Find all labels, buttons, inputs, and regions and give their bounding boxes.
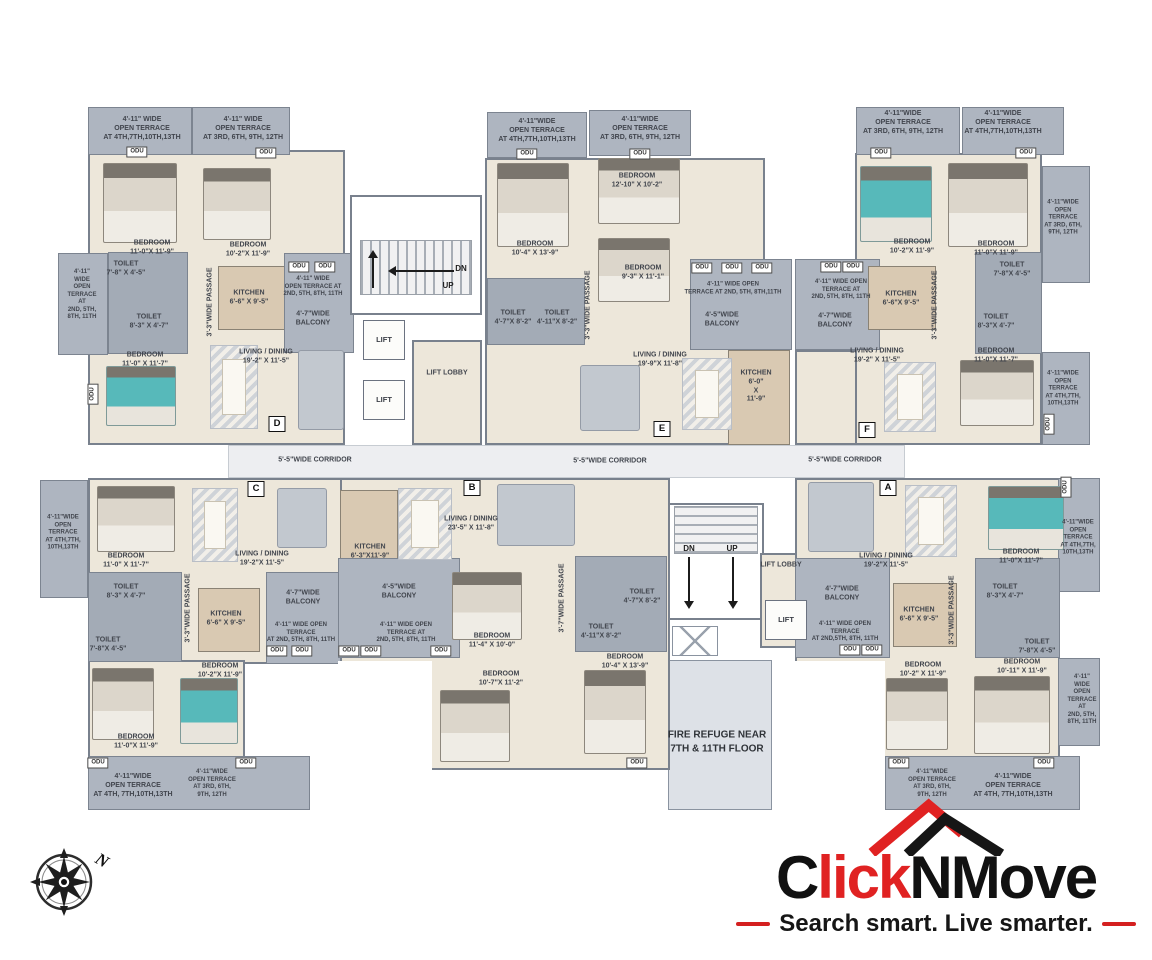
room-label: 4'-11"WIDE OPEN TERRACE AT 4TH,7TH, 10TH… [45, 514, 80, 552]
room-label: TOILET 7'-8"X 4'-5" [90, 636, 127, 654]
room-label: KITCHEN 6'-6"X 9'-5" [883, 290, 920, 308]
odu-label: ODU [235, 758, 256, 769]
room-label: TOILET 4'-11"X 8'-2" [537, 309, 577, 327]
bed-icon [203, 168, 271, 240]
room-label: BEDROOM 10'-2" X 11'-9" [900, 661, 946, 679]
odu-label: ODU [255, 148, 276, 159]
bed-icon [497, 163, 569, 247]
room-label: LIVING / DINING 19'-2"X 11'-5" [859, 552, 913, 570]
room-label: BEDROOM 10'-4" X 13'-9" [602, 653, 649, 671]
lift-label: LIFT [363, 380, 405, 420]
room-label: 4'-5"WIDE BALCONY [382, 583, 417, 601]
room-label: 4'-11"WIDE OPEN TERRACE AT 3RD, 6TH, 9TH… [188, 769, 236, 799]
bed-icon [106, 366, 176, 426]
room-label: BEDROOM 11'-0" X 11'-7" [122, 351, 168, 369]
odu-label: ODU [430, 646, 451, 657]
dining-rug [682, 358, 732, 430]
odu-label: ODU [1015, 148, 1036, 159]
brand-part-black: NMove [909, 844, 1096, 911]
room-label: BEDROOM 10'-2"X 11'-9" [890, 238, 934, 256]
sofa-icon [497, 484, 575, 546]
unit-label-f: F [859, 422, 876, 438]
room-label: TOILET 7'-8" X 4'-5" [107, 260, 146, 278]
tagline-dash [736, 922, 770, 926]
room-label: KITCHEN 6'-0" X 11'-9" [740, 370, 771, 405]
odu-label: ODU [126, 147, 147, 158]
room-label: BEDROOM 11'-0" X 11'-7" [103, 552, 149, 570]
odu-label: ODU [751, 263, 772, 274]
stairs-up-label: UP [726, 544, 737, 554]
room-label: TOILET 8'-3" X 4'-7" [107, 583, 146, 601]
room-label: BEDROOM 11'-0"X 11'-9" [974, 240, 1018, 258]
room-label: 4'-11" WIDE OPEN TERRACE AT 2ND, 5TH, 8T… [684, 282, 781, 297]
room-label: 4'-11"WIDE OPEN TERRACE AT 4TH,7TH, 10TH… [1045, 370, 1080, 408]
room-label: KITCHEN 6'-6" X 9'-5" [900, 606, 939, 624]
room-label: TOILET 4'-7"X 8'-2" [495, 309, 532, 327]
room-label: 4'-11"WIDE OPEN TERRACE AT 4TH,7TH,10TH,… [498, 118, 575, 144]
unit-label-e: E [654, 421, 671, 437]
room-label: BEDROOM 11'-0"X 11'-9" [114, 733, 158, 751]
room-label: 4'-11"WIDE OPEN TERRACE AT 3RD, 6TH, 9TH… [1044, 199, 1082, 237]
room-label: LIVING / DINING 19'-2" X 11'-5" [239, 348, 293, 366]
brand-name: ClickNMove [776, 848, 1096, 908]
bed-icon [960, 360, 1034, 426]
room-label: BEDROOM 10'-4" X 13'-9" [512, 240, 559, 258]
room-label: 3'-7"WIDE PASSAGE [559, 563, 568, 632]
service-shaft [672, 626, 718, 656]
odu-label: ODU [839, 645, 860, 656]
room-label: BEDROOM 11'-0"X 11'-7" [974, 347, 1018, 365]
room-label: 4'-11" WIDE OPEN TERRACE AT 3RD, 6TH, 9T… [203, 116, 283, 142]
odu-label: ODU [888, 758, 909, 769]
sofa-icon [580, 365, 640, 431]
room-label: 3'-3"WIDE PASSAGE [185, 573, 194, 642]
room-label: TOILET 7'-8"X 4'-5" [994, 261, 1031, 279]
odu-label: ODU [291, 646, 312, 657]
sofa-icon [298, 350, 344, 430]
room-label: 4'-7"WIDE BALCONY [286, 589, 321, 607]
room-label: 4'-7"WIDE BALCONY [818, 312, 853, 330]
odu-label: ODU [266, 646, 287, 657]
odu-label: ODU [629, 149, 650, 160]
room-label: BEDROOM 10'-2"X 11'-9" [198, 662, 242, 680]
room-label: 4'-11"WIDE OPEN TERRACE AT 4TH, 7TH,10TH… [973, 773, 1052, 799]
odu-label: ODU [1061, 476, 1072, 497]
dining-rug [905, 485, 957, 557]
odu-label: ODU [1033, 758, 1054, 769]
room-label: 4'-11" WIDE OPEN TERRACE AT 2ND, 5TH, 8T… [376, 622, 435, 645]
bed-icon [440, 690, 510, 762]
stairs-up-label: UP [442, 281, 453, 291]
room-label: BEDROOM 10'-2"X 11'-9" [226, 241, 270, 259]
room-label: KITCHEN 6'-6" X 9'-5" [230, 289, 269, 307]
dining-rug [192, 488, 238, 562]
room-label: BEDROOM 11'-4" X 10'-0" [469, 632, 515, 650]
brand-tagline-row: Search smart. Live smarter. [736, 910, 1136, 938]
tagline-dash [1102, 922, 1136, 926]
bed-icon [92, 668, 154, 740]
brand-part-black: C [776, 844, 817, 911]
exterior-gap [793, 661, 885, 759]
lift-lobby-label: LIFT LOBBY [760, 562, 801, 571]
room-label: 4'-11" WIDE OPEN TERRACE AT 2ND, 5TH, 8T… [1067, 674, 1096, 727]
odu-label: ODU [721, 263, 742, 274]
bed-icon [974, 676, 1050, 754]
room-label: 4'-11"WIDE OPEN TERRACE AT 4TH,7TH,10TH,… [964, 110, 1041, 136]
room-label: 4'-11"WIDE OPEN TERRACE AT 4TH,7TH, 10TH… [1060, 519, 1095, 557]
room-label: 4'-11"WIDE OPEN TERRACE AT 3RD, 6TH, 9TH… [863, 110, 943, 136]
bed-icon [948, 163, 1028, 247]
room-label: BEDROOM 12'-10" X 10'-2" [612, 172, 662, 190]
odu-label: ODU [88, 383, 99, 404]
room-label: BEDROOM 11'-0"X 11'-9" [130, 239, 174, 257]
bed-icon [860, 166, 932, 242]
stairs-dn-label: DN [455, 264, 467, 274]
room-label: 4'-11" WIDE OPEN TERRACE AT 2ND, 5TH, 8T… [67, 269, 96, 322]
lift-label: LIFT [765, 600, 807, 640]
bed-icon [598, 158, 680, 224]
odu-label: ODU [288, 262, 309, 273]
bed-icon [584, 670, 646, 754]
room-label: KITCHEN 6'-6" X 9'-5" [207, 610, 246, 628]
room-label: BEDROOM 9'-3" X 11'-1" [622, 264, 664, 282]
odu-label: ODU [314, 262, 335, 273]
odu-label: ODU [842, 262, 863, 273]
odu-label: ODU [861, 645, 882, 656]
floor-plan: N ClickNMove Search smart. Live smarter.… [0, 0, 1152, 960]
odu-label: ODU [626, 758, 647, 769]
odu-label: ODU [516, 149, 537, 160]
stair-direction-arrow [688, 557, 690, 607]
odu-label: ODU [360, 646, 381, 657]
room-label: 4'-11"WIDE OPEN TERRACE AT 3RD, 6TH, 9TH… [908, 769, 956, 799]
stairs-dn-label: DN [683, 544, 695, 554]
room-label: LIVING / DINING 19'-2"X 11'-5" [235, 550, 289, 568]
corridor-label: 5'-5"WIDE CORRIDOR [573, 458, 646, 467]
room-label: TOILET 4'-7"X 8'-2" [624, 588, 661, 606]
unit-label-a: A [880, 480, 897, 496]
room-label: 4'-11" WIDE OPEN TERRACE AT 2ND,5TH, 8TH… [812, 621, 879, 644]
brand-tagline: Search smart. Live smarter. [779, 910, 1093, 938]
room-label: LIVING / DINING 19'-9"X 11'-8" [633, 351, 687, 369]
room-label: 3'-3"WIDE PASSAGE [207, 267, 216, 336]
room-label: 4'-11"WIDE OPEN TERRACE AT 3RD, 6TH, 9TH… [600, 116, 680, 142]
odu-label: ODU [691, 263, 712, 274]
unit-label-d: D [269, 416, 286, 432]
room-label: TOILET 7'-8"X 4'-5" [1019, 638, 1056, 656]
unit-f-floor [795, 350, 857, 445]
odu-label: ODU [820, 262, 841, 273]
sofa-icon [808, 482, 874, 552]
room-label: TOILET 8'-3"X 4'-7" [987, 583, 1024, 601]
odu-label: ODU [338, 646, 359, 657]
room-label: LIVING / DINING 19'-2" X 11'-5" [850, 347, 904, 365]
stair-direction-arrow [372, 252, 374, 288]
corridor-label: 5'-5"WIDE CORRIDOR [808, 457, 881, 466]
unit-label-b: B [464, 480, 481, 496]
room-label: TOILET 4'-11"X 8'-2" [581, 623, 621, 641]
room-label: 3'-3"WIDE PASSAGE [932, 270, 941, 339]
stair-direction-arrow [732, 557, 734, 607]
odu-label: ODU [87, 758, 108, 769]
bed-icon [103, 163, 177, 243]
room-label: LIVING / DINING 23'-5" X 11'-8" [444, 515, 498, 533]
bed-icon [97, 486, 175, 552]
room-label: TOILET 8'-3" X 4'-7" [130, 313, 169, 331]
room-label: BEDROOM 10'-7"X 11'-2" [479, 670, 523, 688]
room-label: 3'-3"WIDE PASSAGE [585, 270, 594, 339]
room-label: 4'-7"WIDE BALCONY [825, 585, 860, 603]
room-label: BEDROOM 10'-11" X 11'-9" [997, 658, 1047, 676]
lift-lobby-label: LIFT LOBBY [426, 370, 467, 379]
room-label: TOILET 8'-3"X 4'-7" [978, 313, 1015, 331]
brand-part-red: lick [817, 844, 909, 911]
dining-rug [884, 362, 936, 432]
corridor-label: 5'-5"WIDE CORRIDOR [278, 457, 351, 466]
compass-icon: N [18, 836, 118, 922]
stair-direction-arrow [390, 270, 454, 272]
bed-icon [988, 486, 1064, 550]
fire-refuge-label: FIRE REFUGE NEAR 7TH & 11TH FLOOR [668, 729, 766, 756]
compass-north-label: N [91, 849, 113, 872]
odu-label: ODU [1044, 413, 1055, 434]
exterior-gap [338, 661, 432, 771]
room-label: 4'-11" WIDE OPEN TERRACE AT 2ND, 5TH, 8T… [283, 276, 342, 299]
room-label: 3'-3"WIDE PASSAGE [949, 575, 958, 644]
bed-icon [180, 678, 238, 744]
odu-label: ODU [870, 148, 891, 159]
bed-icon [886, 678, 948, 750]
room-label: 4'-11"WIDE OPEN TERRACE AT 4TH, 7TH,10TH… [93, 773, 172, 799]
room-label: 4'-11" WIDE OPEN TERRACE AT 2ND, 5TH, 8T… [811, 279, 870, 302]
room-label: 4'-11" WIDE OPEN TERRACE AT 4TH,7TH,10TH… [103, 116, 180, 142]
room-label: BEDROOM 11'-0"X 11'-7" [999, 548, 1043, 566]
brand-logo: ClickNMove Search smart. Live smarter. [720, 798, 1152, 956]
sofa-icon [277, 488, 327, 548]
room-label: 4'-11" WIDE OPEN TERRACE AT 2ND, 5TH, 8T… [267, 622, 335, 645]
room-label: 4'-7"WIDE BALCONY [296, 310, 331, 328]
unit-label-c: C [248, 481, 265, 497]
bed-icon [452, 572, 522, 640]
lift-lobby [412, 340, 482, 445]
room-label: 4'-5"WIDE BALCONY [705, 311, 740, 329]
room-label: KITCHEN 6'-3"X11'-9" [351, 543, 389, 561]
lift-label: LIFT [363, 320, 405, 360]
